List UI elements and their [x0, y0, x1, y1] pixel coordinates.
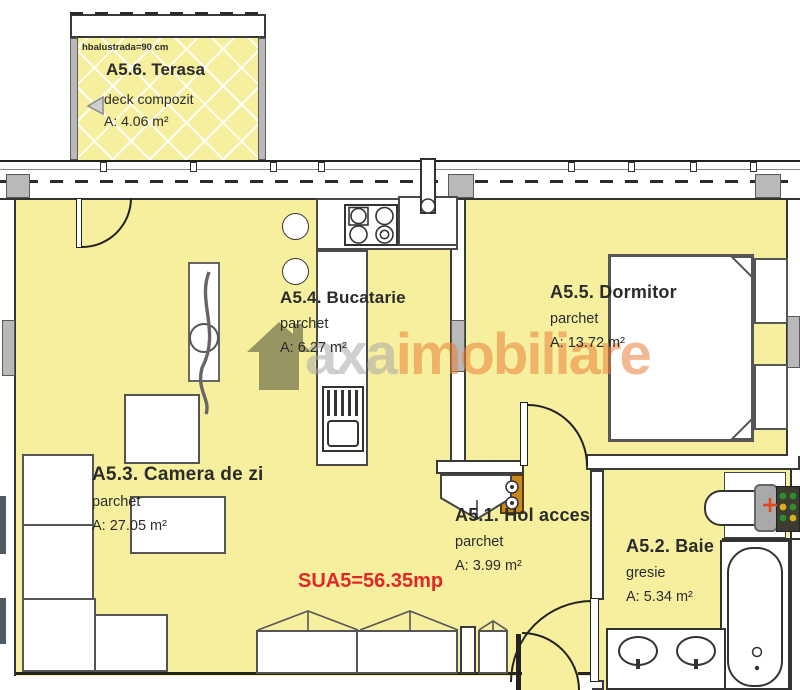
hall-title: A5.1. Hol acces — [455, 505, 590, 526]
stove-burners — [349, 208, 393, 244]
bathroom-area: A: 5.34 m² — [626, 589, 714, 605]
wardrobe-marks — [258, 611, 507, 630]
vanity-faucets — [636, 659, 698, 669]
terrace-direction-arrow — [88, 97, 103, 114]
usable-area-total: SUA5=56.35mp — [298, 570, 443, 593]
kitchen-title: A5.4. Bucatarie — [280, 288, 406, 308]
terrace-title: A5.6. Terasa — [106, 60, 205, 80]
terrace-balustrade-note: hbalustrada=90 cm — [82, 42, 168, 53]
terrace-finish: deck compozit — [104, 91, 193, 107]
living-area: A: 27.05 m² — [92, 518, 264, 534]
bedroom-finish: parchet — [550, 311, 677, 327]
bathroom-title: A5.2. Baie — [626, 536, 714, 557]
kitchen-area: A: 6.27 m² — [280, 340, 406, 356]
hall-area: A: 3.99 m² — [455, 558, 590, 574]
tub-drain — [753, 648, 762, 671]
boiler-indicators — [763, 493, 796, 522]
kitchen-finish: parchet — [280, 316, 406, 332]
floor-plan: axaimobiliare hbalustrada=90 cm A5.6. Te… — [0, 0, 800, 690]
living-title: A5.3. Camera de zi — [92, 464, 264, 486]
plant — [190, 272, 218, 414]
bedroom-area: A: 13.72 m² — [550, 335, 677, 351]
bedroom-title: A5.5. Dormitor — [550, 282, 677, 303]
bed-pillows — [732, 257, 752, 439]
living-finish: parchet — [92, 494, 264, 510]
hall-label: A5.1. Hol acces parchet A: 3.99 m² — [455, 505, 590, 574]
kitchen-label: A5.4. Bucatarie parchet A: 6.27 m² — [280, 288, 406, 356]
pipe-cap — [421, 199, 435, 213]
terrace-area: A: 4.06 m² — [104, 113, 169, 129]
bathroom-label: A5.2. Baie gresie A: 5.34 m² — [626, 536, 714, 605]
living-label: A5.3. Camera de zi parchet A: 27.05 m² — [92, 464, 264, 534]
hall-finish: parchet — [455, 534, 590, 550]
bedroom-label: A5.5. Dormitor parchet A: 13.72 m² — [550, 282, 677, 351]
bathroom-finish: gresie — [626, 565, 714, 581]
